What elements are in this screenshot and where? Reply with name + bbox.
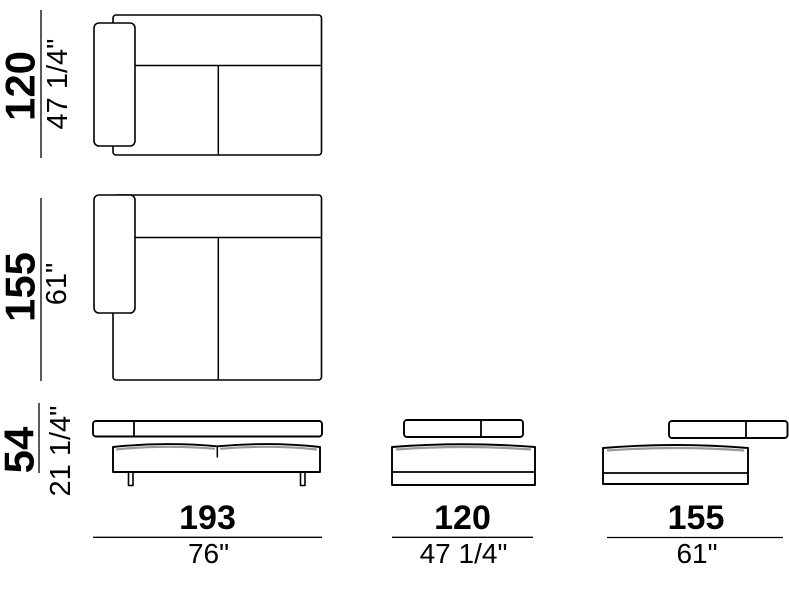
depth-label-inches: 47 1/4" (42, 39, 74, 130)
sofa-body-outline (113, 15, 322, 155)
seat-base-outline (392, 444, 535, 485)
sofa-leg-left (129, 472, 134, 486)
height-label-cm: 54 (0, 426, 43, 473)
width-label-cm: 193 (179, 499, 236, 537)
sofa-dimension-drawing: 120 47 1/4" 155 61" 54 21 1/4" (0, 0, 789, 591)
armrest-outline (94, 23, 135, 146)
depth-label-cm: 155 (0, 252, 44, 322)
width-label-inches: 76" (188, 538, 229, 569)
backrest-bar-outline (93, 421, 322, 437)
height-label-inches: 21 1/4" (45, 406, 77, 497)
sofa-body-outline (113, 195, 322, 380)
depth-label-inches: 61" (41, 263, 73, 306)
width-label-inches: 47 1/4" (420, 538, 508, 569)
elevation-module-120: 120 47 1/4" (392, 420, 535, 569)
sofa-leg-right (301, 472, 306, 486)
seat-base-outline (603, 445, 748, 484)
armrest-outline (94, 195, 135, 313)
depth-label-cm: 120 (0, 51, 44, 121)
elevation-module-193: 54 21 1/4" 193 76" (0, 403, 322, 569)
elevation-module-155: 155 61" (603, 421, 788, 569)
backrest-bar-outline (404, 420, 523, 437)
plan-view-module-120: 120 47 1/4" (0, 10, 321, 158)
width-label-inches: 61" (676, 538, 717, 569)
width-label-cm: 155 (668, 499, 725, 537)
plan-view-module-155: 155 61" (0, 195, 322, 381)
technical-drawing-svg: 120 47 1/4" 155 61" 54 21 1/4" (0, 0, 789, 591)
width-label-cm: 120 (434, 499, 491, 537)
backrest-bar-outline (669, 421, 788, 438)
